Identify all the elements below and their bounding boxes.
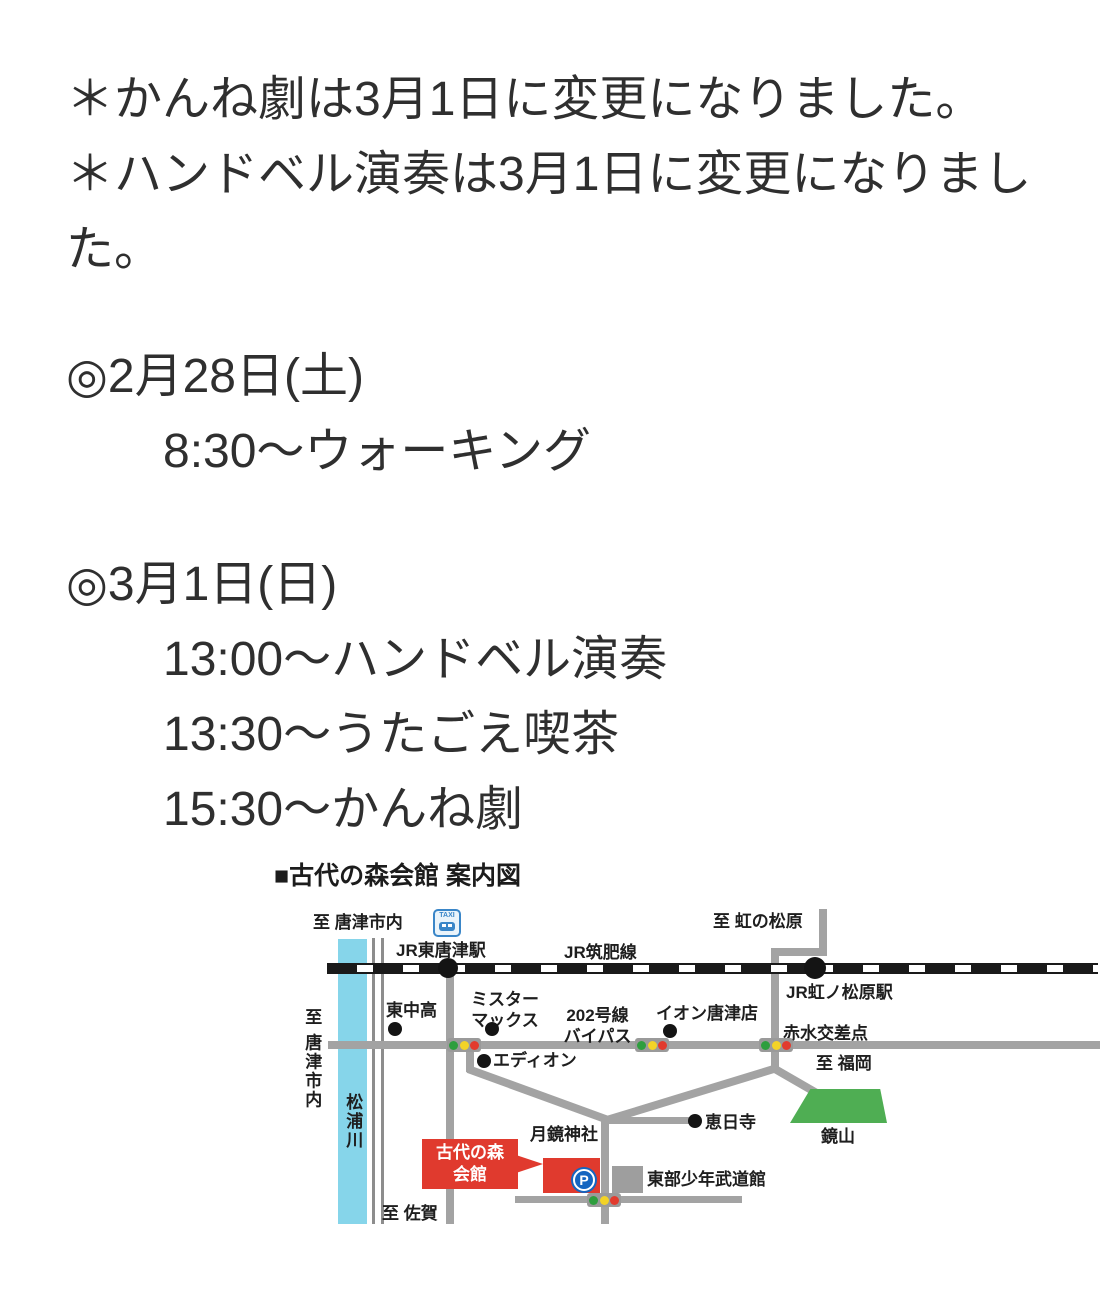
enichiji-label: 恵日寺 bbox=[705, 1112, 756, 1133]
schedule-item: 13:00〜ハンドベル演奏 bbox=[163, 622, 1106, 697]
to-niji-no-matsubara-label: 至 虹の松原 bbox=[713, 911, 803, 932]
to-karatsu-city-left-label: 至 唐津市内 bbox=[301, 1008, 322, 1110]
signal-red-light bbox=[470, 1041, 479, 1050]
signal-yellow-light bbox=[648, 1041, 657, 1050]
higashi-chuko-dot bbox=[388, 1022, 402, 1036]
aeon-karatsu-dot bbox=[663, 1024, 677, 1038]
taxi-car-glyph bbox=[439, 922, 455, 931]
parking-icon: P bbox=[573, 1169, 595, 1191]
to-fukuoka-label: 至 福岡 bbox=[816, 1053, 872, 1074]
signal-red-light bbox=[658, 1041, 667, 1050]
schedule-item: 13:30〜うたごえ喫茶 bbox=[163, 697, 1106, 772]
mr-max-label: ミスター マックス bbox=[467, 989, 543, 1032]
traffic-signal bbox=[635, 1038, 669, 1052]
document-body: ＊かんね劇は3月1日に変更になりました。 ＊ハンドベル演奏は3月1日に変更になり… bbox=[0, 0, 1106, 847]
jr-chikuhi-line-label: JR筑肥線 bbox=[564, 942, 637, 963]
schedule-block-mar1: ◎3月1日(日) 13:00〜ハンドベル演奏 13:30〜うたごえ喫茶 15:3… bbox=[66, 547, 1106, 847]
edion-junction-diagonal-road bbox=[467, 1065, 609, 1123]
jr-higashi-karatsu-station-label: JR東唐津駅 bbox=[396, 940, 486, 961]
matsuura-river-label: 松浦川 bbox=[342, 1093, 363, 1150]
access-map: ■古代の森会館 案内図 松浦川 至 唐津市内 TAXI JR東唐津駅 JR筑肥線… bbox=[270, 856, 1106, 1306]
matsuura-river-band bbox=[338, 939, 367, 1224]
niji-no-matsubara-station-dot bbox=[804, 957, 826, 979]
kagamiyama-label: 鏡山 bbox=[821, 1126, 855, 1147]
to-saga-label: 至 佐賀 bbox=[382, 1203, 438, 1224]
shrine-road-vertical bbox=[601, 1118, 609, 1224]
matsubara-road-bend bbox=[773, 948, 827, 956]
route-202-bypass-label: 202号線 バイパス bbox=[560, 1005, 635, 1048]
signal-red-light bbox=[782, 1041, 791, 1050]
schedule-item: 8:30〜ウォーキング bbox=[163, 414, 1106, 489]
edion-label: エディオン bbox=[493, 1050, 577, 1071]
riverside-road bbox=[372, 938, 384, 1224]
notice-line-1: ＊かんね劇は3月1日に変更になりました。 bbox=[66, 62, 1066, 137]
kagamiyama-mountain-shape bbox=[790, 1089, 887, 1123]
map-title: ■古代の森会館 案内図 bbox=[274, 856, 521, 892]
jr-niji-no-matsubara-station-label: JR虹ノ松原駅 bbox=[786, 982, 893, 1003]
signal-yellow-light bbox=[460, 1041, 469, 1050]
traffic-signal bbox=[447, 1038, 481, 1052]
akamizu-crossing-label: 赤水交差点 bbox=[783, 1023, 868, 1044]
signal-yellow-light bbox=[600, 1196, 609, 1205]
budokan-building bbox=[612, 1166, 643, 1193]
aeon-karatsu-label: イオン唐津店 bbox=[656, 1003, 758, 1024]
schedule-block-feb28: ◎2月28日(土) 8:30〜ウォーキング bbox=[66, 339, 1106, 489]
signal-green-light bbox=[761, 1041, 770, 1050]
higashi-chuko-label: 東中高 bbox=[386, 1000, 437, 1021]
schedule-date: ◎3月1日(日) bbox=[66, 547, 1106, 622]
signal-yellow-light bbox=[772, 1041, 781, 1050]
taxi-stand-icon: TAXI bbox=[433, 909, 461, 937]
signal-green-light bbox=[589, 1196, 598, 1205]
to-karatsu-city-top-label: 至 唐津市内 bbox=[313, 912, 403, 933]
callout-pointer bbox=[516, 1155, 543, 1173]
edion-dot bbox=[477, 1054, 491, 1068]
signal-green-light bbox=[449, 1041, 458, 1050]
traffic-signal bbox=[587, 1193, 621, 1207]
signal-red-light bbox=[610, 1196, 619, 1205]
signal-green-light bbox=[637, 1041, 646, 1050]
kodai-no-mori-hall-callout: 古代の森 会館 bbox=[422, 1139, 518, 1189]
hall-front-road bbox=[515, 1196, 742, 1203]
traffic-signal bbox=[759, 1038, 793, 1052]
mr-max-dot bbox=[485, 1022, 499, 1036]
enichiji-road bbox=[605, 1117, 693, 1124]
enichiji-dot bbox=[688, 1114, 702, 1128]
bypass-road bbox=[328, 1041, 1100, 1049]
tobu-budokan-label: 東部少年武道館 bbox=[647, 1169, 766, 1190]
schedule-item: 15:30〜かんね劇 bbox=[163, 772, 1106, 847]
tsukikagami-shrine-label: 月鏡神社 bbox=[530, 1124, 598, 1145]
schedule-date: ◎2月28日(土) bbox=[66, 339, 1106, 414]
notice-line-2: ＊ハンドベル演奏は3月1日に変更になりました。 bbox=[66, 137, 1066, 287]
taxi-icon-label: TAXI bbox=[435, 912, 459, 919]
